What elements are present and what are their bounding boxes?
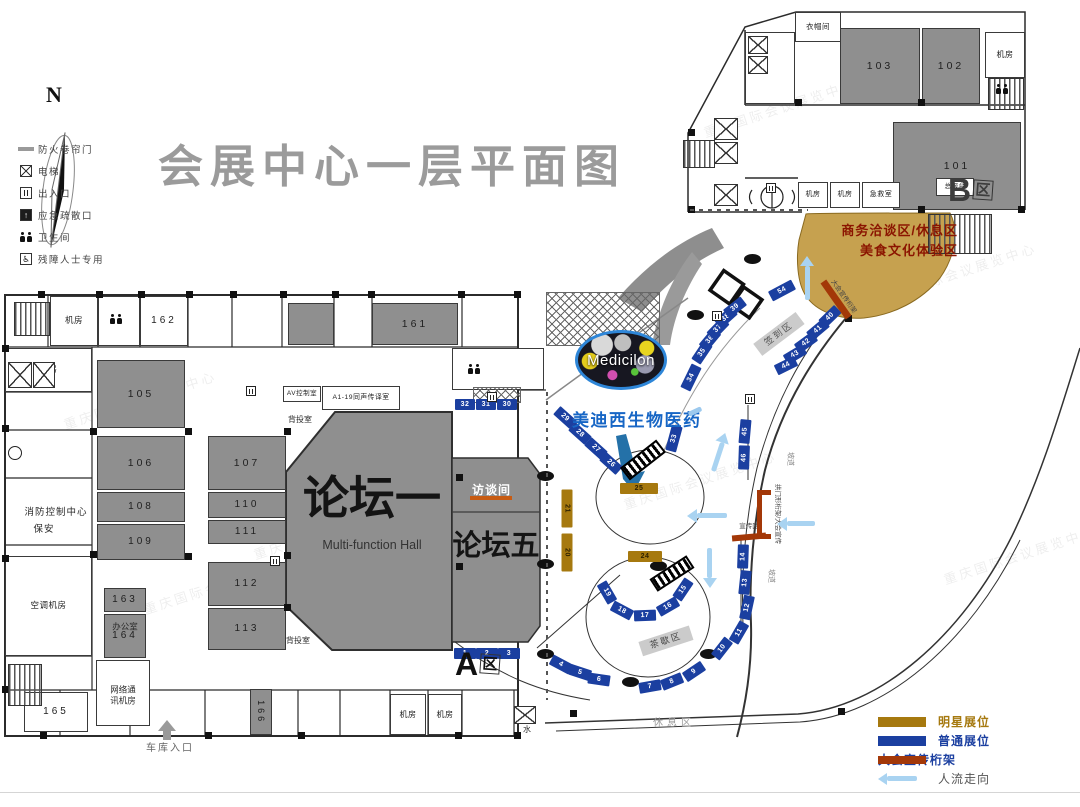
column-square bbox=[230, 291, 237, 298]
legend-item-accessible: ♿ 残障人士专用 bbox=[14, 248, 104, 270]
column-oval bbox=[744, 254, 761, 264]
page-bottom-edge bbox=[0, 792, 1080, 793]
elevator-icon bbox=[714, 118, 738, 140]
column-square bbox=[40, 732, 47, 739]
column-square bbox=[205, 732, 212, 739]
booth-legend-flow: 人流走向 bbox=[878, 769, 990, 788]
column-square bbox=[2, 345, 9, 352]
legend-item-entrance: 出入口 bbox=[14, 182, 104, 204]
booth-legend-normal: 普通展位 bbox=[878, 731, 990, 750]
entrance-icon bbox=[14, 187, 38, 199]
room-161: 161 bbox=[372, 303, 458, 345]
column-square bbox=[2, 555, 9, 562]
column-square bbox=[368, 291, 375, 298]
medicilon-caption: 美迪西生物医药 bbox=[572, 406, 702, 431]
fire-shutter-line bbox=[546, 392, 548, 700]
medicilon-logo: Medicilon bbox=[575, 330, 667, 390]
stairs-icon bbox=[683, 140, 715, 168]
room-机房: 机房 bbox=[50, 296, 98, 346]
column-square bbox=[458, 291, 465, 298]
booth-17: 17 bbox=[634, 609, 656, 621]
legend-item-emergency-exit: ↑ 应急疏散口 bbox=[14, 204, 104, 226]
flow-direction-arrow bbox=[800, 256, 814, 300]
column-square bbox=[2, 425, 9, 432]
room-急救室: 急救室 bbox=[862, 182, 900, 208]
symbol-legend: 防火卷帘门 电梯 出入口 ↑ 应急疏散口 卫生间 ♿ 残障人士专用 bbox=[14, 138, 104, 270]
room-机房: 机房 bbox=[390, 694, 426, 735]
column-square bbox=[332, 291, 339, 298]
room-机房: 机房 bbox=[798, 182, 828, 208]
floor-plan-canvas: N 会展中心一层平面图 防火卷帘门 电梯 出入口 ↑ 应急疏散口 bbox=[0, 0, 1080, 807]
room-166: 166 bbox=[250, 689, 272, 735]
column-square bbox=[795, 99, 802, 106]
booth-46: 46 bbox=[738, 445, 750, 469]
column-oval bbox=[687, 310, 704, 320]
entrance-icon bbox=[745, 394, 755, 404]
plan-label: 坡道 bbox=[785, 452, 794, 466]
room-108: 108 bbox=[97, 492, 185, 522]
food-culture-label: 美食文化体验区 bbox=[808, 240, 958, 259]
room-机房: 机房 bbox=[985, 32, 1025, 78]
forum-one-subtitle: Multi-function Hall bbox=[282, 538, 462, 552]
room-164: 164 bbox=[104, 614, 146, 658]
elevator-icon bbox=[748, 56, 768, 74]
elevator-icon bbox=[714, 142, 738, 164]
room-空调机房: 空调机房 bbox=[5, 556, 92, 656]
restroom-icon bbox=[468, 364, 480, 374]
garage-entrance-arrow-icon bbox=[158, 720, 176, 740]
interview-room-underline bbox=[470, 496, 512, 500]
legend-item-elevator: 电梯 bbox=[14, 160, 104, 182]
elevator-icon bbox=[8, 362, 32, 388]
column-square bbox=[688, 129, 695, 136]
flow-direction-arrow bbox=[777, 517, 815, 531]
column-square bbox=[918, 99, 925, 106]
column-square bbox=[1018, 206, 1025, 213]
room-106: 106 bbox=[97, 436, 185, 490]
promo-truss-bar bbox=[757, 534, 771, 539]
stairs-icon bbox=[8, 664, 42, 706]
promo-truss-bar bbox=[757, 490, 762, 538]
room-A1-19同声传译室: A1-19同声传译室 bbox=[322, 386, 400, 410]
zone-a-marker: A区 bbox=[455, 648, 500, 680]
zone-b-marker: B区 bbox=[948, 174, 993, 206]
stairs-icon bbox=[14, 302, 50, 336]
column-square bbox=[185, 428, 192, 435]
promo-truss-bar bbox=[757, 490, 771, 495]
room-105: 105 bbox=[97, 360, 185, 428]
room-112: 112 bbox=[208, 562, 286, 606]
booth-25: 25 bbox=[620, 483, 658, 494]
legend-item-fire-shutter: 防火卷帘门 bbox=[14, 138, 104, 160]
hall-forum-one bbox=[286, 412, 452, 650]
room-103: 103 bbox=[840, 28, 920, 104]
column-square bbox=[284, 604, 291, 611]
elevator-icon bbox=[14, 165, 38, 177]
booth-24: 24 bbox=[628, 551, 662, 562]
elevator-icon bbox=[33, 362, 55, 388]
room-111: 111 bbox=[208, 520, 286, 544]
booth-legend-truss: 大会宣传桁架 bbox=[878, 750, 990, 769]
column-square bbox=[280, 291, 287, 298]
fire-shutter-icon bbox=[14, 147, 38, 151]
elevator-icon bbox=[514, 706, 536, 724]
room-113: 113 bbox=[208, 608, 286, 650]
room-110: 110 bbox=[208, 492, 286, 518]
room-unlabeled bbox=[452, 348, 544, 390]
booth-3: 3 bbox=[498, 648, 520, 659]
page-title: 会展中心一层平面图 bbox=[158, 130, 626, 195]
column-square bbox=[96, 291, 103, 298]
plan-label: 休息区 bbox=[653, 718, 695, 731]
entrance-icon bbox=[766, 183, 776, 193]
plan-label: 保安 bbox=[33, 524, 54, 536]
entrance-icon bbox=[270, 556, 280, 566]
entrance-icon bbox=[712, 311, 722, 321]
restroom-icon bbox=[110, 314, 122, 324]
column-square bbox=[455, 732, 462, 739]
plan-label: 消防控制中心 bbox=[24, 507, 87, 519]
column-square bbox=[284, 552, 291, 559]
column-oval bbox=[622, 677, 639, 687]
booth-14: 14 bbox=[737, 544, 749, 568]
flow-direction-arrow bbox=[703, 548, 717, 588]
column-square bbox=[186, 291, 193, 298]
forum-one-label: 论坛一 bbox=[282, 462, 462, 528]
booth-30: 30 bbox=[497, 399, 517, 410]
column-square bbox=[456, 563, 463, 570]
room-162: 162 bbox=[140, 296, 188, 346]
column-square bbox=[570, 710, 577, 717]
column-square bbox=[298, 732, 305, 739]
room-机房: 机房 bbox=[830, 182, 860, 208]
column-square bbox=[185, 553, 192, 560]
room-机房: 机房 bbox=[428, 694, 462, 735]
room-163: 163 bbox=[104, 588, 146, 612]
column-square bbox=[514, 291, 521, 298]
elevator-icon bbox=[748, 36, 768, 54]
accessible-icon: ♿ bbox=[14, 253, 38, 265]
booth-20: 20 bbox=[562, 533, 573, 571]
column-square bbox=[38, 291, 45, 298]
booth-legend: 明星展位 普通展位 大会宣传桁架 人流走向 bbox=[878, 712, 990, 788]
column-square bbox=[90, 551, 97, 558]
emergency-exit-icon: ↑ bbox=[14, 209, 38, 221]
plan-label: 背投室 bbox=[286, 636, 310, 646]
booth-21: 21 bbox=[562, 489, 573, 527]
column-square bbox=[284, 428, 291, 435]
column-square bbox=[138, 291, 145, 298]
entrance-icon bbox=[487, 392, 497, 402]
plan-label: 车库入口 bbox=[146, 743, 194, 756]
flow-arrow-icon bbox=[878, 773, 926, 785]
room-109: 109 bbox=[97, 524, 185, 560]
compass-north-label: N bbox=[46, 82, 62, 107]
plan-label: 坡道 bbox=[766, 569, 775, 583]
room-衣帽间: 衣帽间 bbox=[795, 12, 841, 42]
legend-item-restroom: 卫生间 bbox=[14, 226, 104, 248]
elevator-icon bbox=[714, 184, 738, 206]
restroom-icon bbox=[14, 232, 38, 242]
plan-label: 办公室 bbox=[112, 622, 138, 633]
restroom-icon bbox=[996, 84, 1008, 94]
business-lounge-label: 商务洽谈区/休息区 bbox=[808, 220, 958, 239]
booth-6: 6 bbox=[587, 672, 610, 686]
room-AV控制室: AV控制室 bbox=[283, 386, 321, 402]
column-square bbox=[514, 732, 521, 739]
column-square bbox=[456, 474, 463, 481]
flow-direction-arrow bbox=[687, 509, 727, 523]
column-circle-symbol bbox=[8, 446, 22, 460]
truss-swatch bbox=[878, 756, 926, 764]
star-booth-swatch bbox=[878, 717, 926, 727]
plan-label: 网络通讯机房 bbox=[107, 684, 139, 705]
booth-32: 32 bbox=[455, 399, 475, 410]
concourse-walls bbox=[455, 298, 1080, 737]
plan-label: 水 bbox=[523, 725, 531, 735]
room-102: 102 bbox=[922, 28, 980, 104]
column-square bbox=[918, 206, 925, 213]
normal-booth-swatch bbox=[878, 736, 926, 746]
plan-label: 背投室 bbox=[288, 415, 312, 425]
forum-five-label: 论坛五 bbox=[452, 522, 540, 564]
plan-label: 拱门形桁架/大会宣传 bbox=[773, 484, 781, 544]
entrance-icon bbox=[246, 386, 256, 396]
booth-45: 45 bbox=[738, 419, 751, 444]
column-square bbox=[838, 708, 845, 715]
column-square bbox=[90, 428, 97, 435]
fire-shutter-line bbox=[690, 209, 808, 211]
booth-legend-star: 明星展位 bbox=[878, 712, 990, 731]
room-unlabeled bbox=[288, 303, 334, 345]
room-107: 107 bbox=[208, 436, 286, 490]
